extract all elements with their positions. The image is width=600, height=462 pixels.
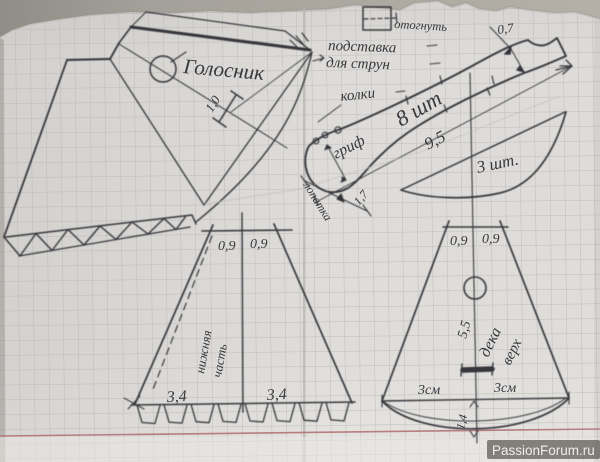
svg-text:PassionForum.ru: PassionForum.ru: [492, 443, 595, 458]
